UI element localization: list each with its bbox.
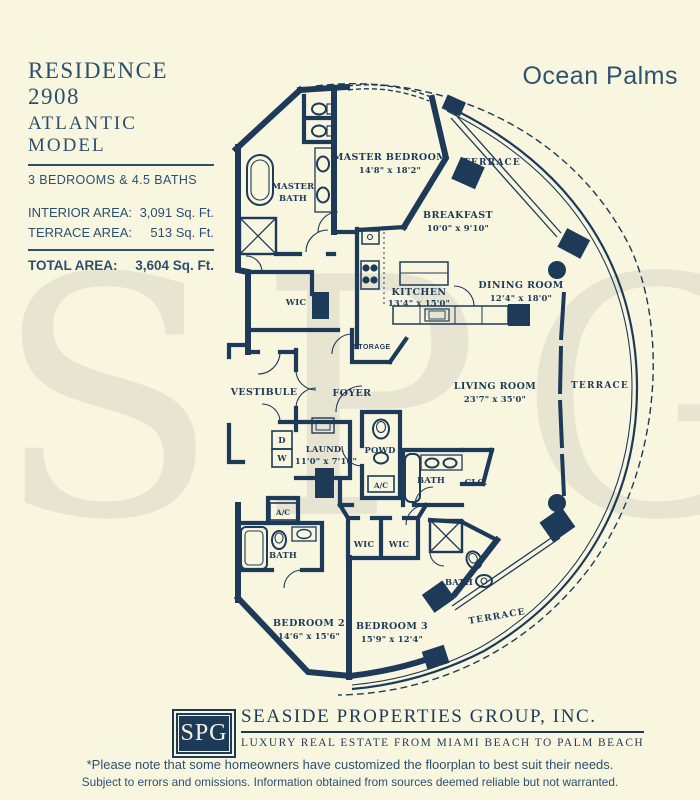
room-label-master-bath-2: BATH xyxy=(279,193,307,203)
room-label-bath-3: BATH xyxy=(417,475,445,485)
room-label-dining-room: DINING ROOM xyxy=(478,280,563,291)
interior-area-row: INTERIOR AREA: 3,091 Sq. Ft. xyxy=(28,205,214,220)
room-label-living-room: LIVING ROOM xyxy=(454,381,536,392)
company-block: SEASIDE PROPERTIES GROUP, INC. LUXURY RE… xyxy=(241,706,644,749)
room-label-bedroom-2: BEDROOM 2 xyxy=(273,618,345,629)
toilet-bath2 xyxy=(272,531,286,549)
room-label-vestibule: VESTIBULE xyxy=(230,387,298,398)
room-label-terrace-right: TERRACE xyxy=(571,381,629,391)
interior-area-value: 3,091 Sq. Ft. xyxy=(140,205,214,220)
room-label-closet: CLO. xyxy=(464,477,487,487)
room-label-master-bath-1: MASTER xyxy=(272,181,315,191)
bath3-sinks xyxy=(421,455,462,470)
kitchen-island xyxy=(400,262,448,285)
master-sink-2 xyxy=(317,188,329,203)
kitchen-counter xyxy=(393,306,508,324)
building-name: Ocean Palms xyxy=(522,62,678,91)
room-label-master-bedroom: MASTER BEDROOM xyxy=(333,152,447,163)
sink-bath2 xyxy=(292,527,316,541)
room-label-foyer: FOYER xyxy=(333,388,372,399)
sliding-glass-wall xyxy=(560,292,564,496)
disclaimer-line1: *Please note that some homeowners have c… xyxy=(0,757,700,772)
master-shower xyxy=(240,218,276,254)
toilet-bath4 xyxy=(464,549,485,571)
room-label-bedroom-3: BEDROOM 3 xyxy=(356,621,428,632)
header-block: RESIDENCE 2908 ATLANTIC MODEL 3 BEDROOMS… xyxy=(28,58,214,273)
room-dims-dining-room: 12'4" x 18'0" xyxy=(490,293,552,303)
washer-label: W xyxy=(276,453,287,463)
room-label-bath-2: BATH xyxy=(269,550,297,560)
room-dims-bedroom-2: 14'6" x 15'6" xyxy=(278,631,340,641)
spg-logo: SPG xyxy=(172,709,236,758)
residence-title: RESIDENCE 2908 xyxy=(28,58,214,110)
room-label-wic-bed2: WIC xyxy=(353,539,375,549)
master-sink-1 xyxy=(317,157,329,172)
room-dims-breakfast: 10'0" x 9'10" xyxy=(427,223,489,233)
disclaimer: *Please note that some homeowners have c… xyxy=(0,757,700,789)
total-area-label: TOTAL AREA: xyxy=(28,258,118,273)
toilet-wc2 xyxy=(312,126,332,137)
disclaimer-line2: Subject to errors and omissions. Informa… xyxy=(0,775,700,789)
model-title: ATLANTIC MODEL xyxy=(28,113,214,166)
terrace-area-value: 513 Sq. Ft. xyxy=(150,225,214,240)
room-label-ac-hall: A/C xyxy=(373,481,388,490)
company-name: SEASIDE PROPERTIES GROUP, INC. xyxy=(241,706,644,733)
toilet-wc1 xyxy=(312,104,332,115)
terrace-area-label: TERRACE AREA: xyxy=(28,225,132,240)
room-label-terrace-top: TERRACE xyxy=(463,158,521,168)
terrace-railings xyxy=(451,114,561,610)
kitchen-oven xyxy=(362,231,379,244)
room-labels: MASTER BATH MASTER BEDROOM 14'8" x 18'2"… xyxy=(230,152,629,644)
bed-bath-subtitle: 3 BEDROOMS & 4.5 BATHS xyxy=(28,173,214,187)
master-window-wall xyxy=(348,85,431,101)
terrace-area-row: TERRACE AREA: 513 Sq. Ft. xyxy=(28,225,214,240)
room-dims-kitchen: 13'4" x 15'0" xyxy=(388,298,450,308)
room-label-terrace-bottom: TERRACE xyxy=(468,607,527,627)
page: SPG RESIDENCE 2908 ATLANTIC MODEL 3 BEDR… xyxy=(0,0,700,800)
room-label-breakfast: BREAKFAST xyxy=(423,210,493,221)
kitchen-stove xyxy=(361,261,379,289)
total-area-row: TOTAL AREA: 3,604 Sq. Ft. xyxy=(28,258,214,273)
room-label-laundry: LAUND. xyxy=(306,444,344,454)
total-area-value: 3,604 Sq. Ft. xyxy=(135,258,214,273)
room-label-powder: POWD xyxy=(364,445,395,455)
bath4-shower xyxy=(430,520,462,552)
toilet-powder xyxy=(373,420,389,439)
room-label-wic-bed3: WIC xyxy=(388,539,410,549)
room-dims-laundry: 11'0" x 7'10" xyxy=(295,456,357,466)
interior-area-label: INTERIOR AREA: xyxy=(28,205,132,220)
room-label-kitchen: KITCHEN xyxy=(391,287,446,298)
area-rows: INTERIOR AREA: 3,091 Sq. Ft. TERRACE ARE… xyxy=(28,205,214,251)
dryer-label: D xyxy=(278,435,285,445)
room-dims-bedroom-3: 15'9" x 12'4" xyxy=(361,634,423,644)
room-dims-master-bedroom: 14'8" x 18'2" xyxy=(359,165,421,175)
company-tagline: LUXURY REAL ESTATE FROM MIAMI BEACH TO P… xyxy=(241,737,644,749)
spg-logo-text: SPG xyxy=(180,720,227,747)
room-label-bath-4: BATH xyxy=(445,577,473,587)
room-dims-living-room: 23'7" x 35'0" xyxy=(464,394,526,404)
room-label-ac-2: A/C xyxy=(275,508,290,517)
room-label-storage: STORAGE xyxy=(353,344,390,351)
room-label-wic-master: WIC xyxy=(285,297,307,307)
